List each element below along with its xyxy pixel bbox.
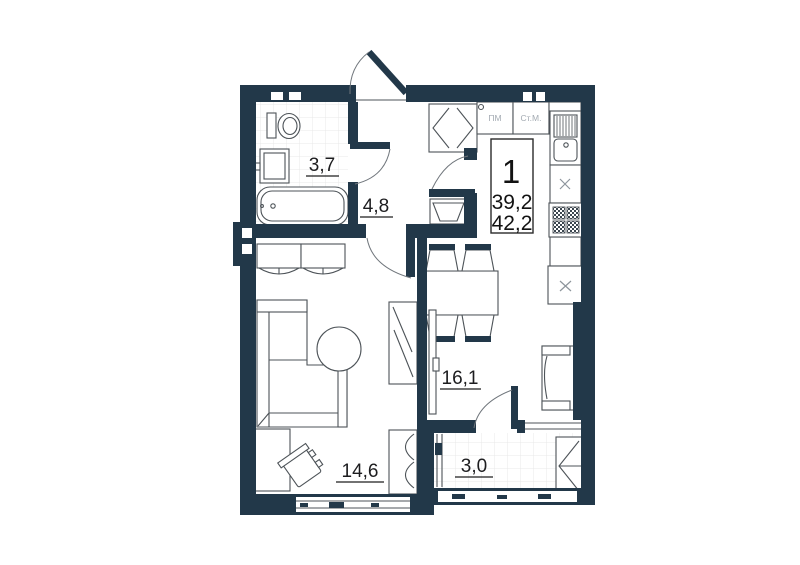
coffee-table — [317, 327, 361, 371]
bathroom-sink — [255, 149, 289, 183]
dining-chair — [426, 244, 458, 271]
living-area-value: 39,2 — [492, 191, 533, 214]
entrance-door — [350, 52, 406, 100]
armchair — [542, 346, 574, 410]
refrigerator — [548, 266, 583, 304]
balcony-area-label: 3,0 — [461, 456, 487, 477]
shoe-cabinet — [430, 199, 468, 224]
rooms-count-label: 1 — [502, 153, 520, 190]
window-bedroom — [296, 497, 410, 512]
stove — [549, 203, 583, 237]
dishwasher-label: ПМ — [488, 113, 501, 123]
toilet — [267, 113, 300, 139]
dining-chair — [462, 315, 494, 342]
washer-label: Ст.М. — [521, 113, 542, 123]
floor-plan-svg: ПМ Ст.М. — [0, 0, 800, 565]
kitchen-door — [429, 156, 475, 197]
bedroom-area-label: 14,6 — [342, 461, 379, 482]
wardrobe-bottom — [389, 430, 417, 494]
bathroom-door — [350, 142, 390, 184]
unit-info-card: 1 39,2 42,2 — [491, 139, 533, 235]
bathtub — [257, 187, 348, 225]
balcony-door — [474, 386, 518, 429]
bathroom-area-label: 3,7 — [309, 155, 335, 176]
balcony-wardrobe — [556, 437, 582, 495]
dining-table — [421, 271, 498, 315]
dining-chair — [462, 244, 494, 271]
wardrobe-tall — [389, 302, 417, 384]
floor-plan: ПМ Ст.М. — [0, 0, 800, 565]
total-area-value: 42,2 — [492, 212, 533, 235]
kitchen-sink — [550, 111, 581, 165]
hallway-area-label: 4,8 — [363, 196, 389, 217]
bedroom-door — [367, 236, 415, 278]
kitchen-living-area-label: 16,1 — [442, 368, 479, 389]
wardrobe-top — [257, 244, 345, 274]
hall-wardrobe — [429, 104, 477, 152]
